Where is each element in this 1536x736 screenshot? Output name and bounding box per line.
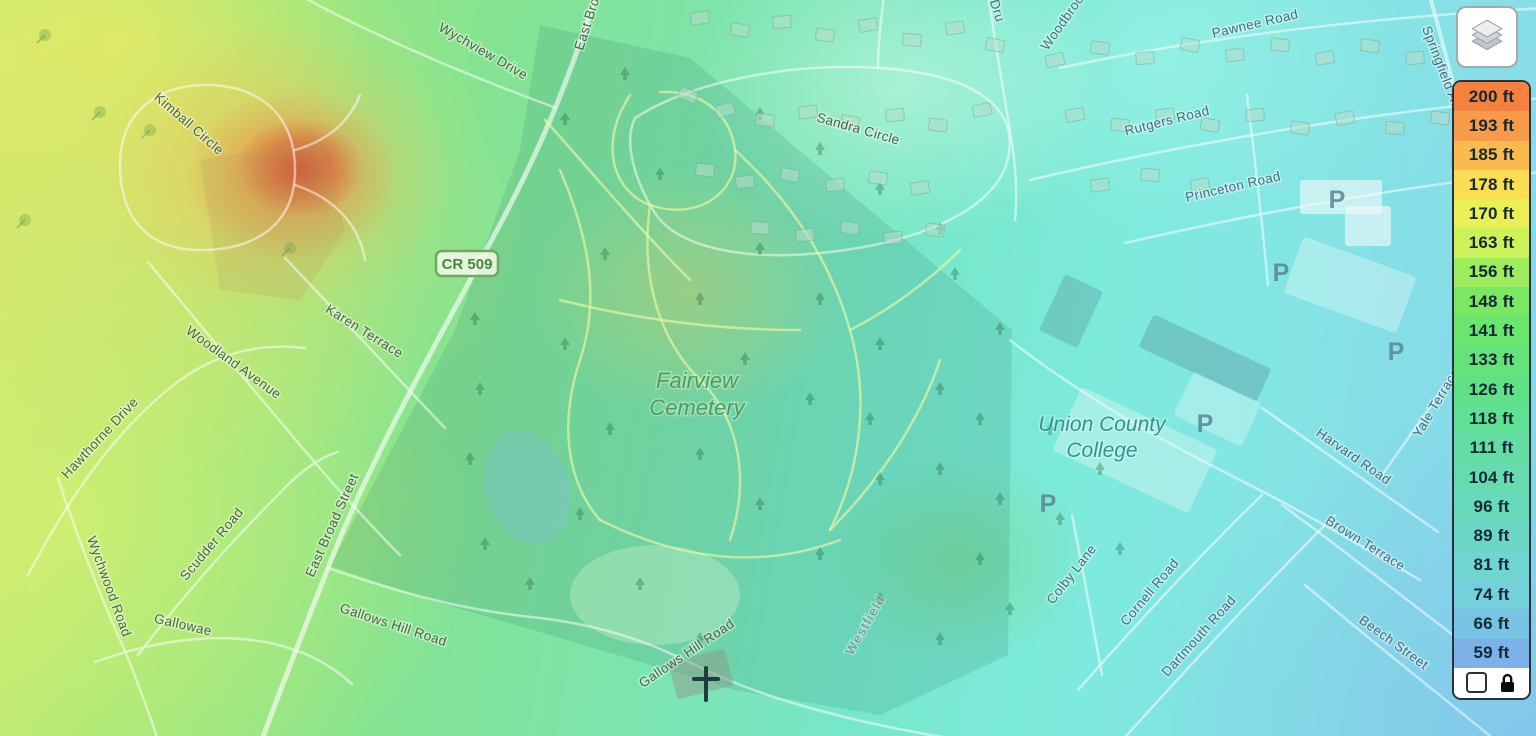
legend-elevation-row: 170 ft bbox=[1454, 199, 1529, 228]
legend-elevation-row: 163 ft bbox=[1454, 228, 1529, 257]
legend-elevation-row: 118 ft bbox=[1454, 404, 1529, 433]
legend-elevation-row: 126 ft bbox=[1454, 375, 1529, 404]
legend-elevation-row: 66 ft bbox=[1454, 609, 1529, 638]
map-label: P bbox=[1197, 410, 1214, 438]
map-label: P bbox=[1040, 490, 1057, 518]
map-label: Woodland Avenue bbox=[183, 323, 284, 402]
elevation-scale: 200 ft193 ft185 ft178 ft170 ft163 ft156 … bbox=[1454, 82, 1529, 668]
legend-elevation-row: 104 ft bbox=[1454, 463, 1529, 492]
legend-elevation-row: 59 ft bbox=[1454, 639, 1529, 668]
map-label: Brown Terrace bbox=[1323, 513, 1408, 574]
legend-controls bbox=[1454, 668, 1529, 698]
legend-elevation-row: 96 ft bbox=[1454, 492, 1529, 521]
map-label: Gallowae bbox=[153, 611, 214, 639]
map-label: Harvard Road bbox=[1313, 425, 1393, 488]
legend-elevation-row: 148 ft bbox=[1454, 287, 1529, 316]
map-label: Kimball Circle bbox=[151, 89, 226, 157]
map-label: Princeton Road bbox=[1184, 168, 1282, 204]
map-label: CR 509 bbox=[442, 256, 493, 273]
topographic-map-app: { "legend": { "unit": "ft", "items": [ {… bbox=[0, 0, 1536, 736]
map-label: Karen Terrace bbox=[323, 301, 406, 361]
map-label: Cemetery bbox=[649, 395, 746, 420]
map-label: Dartmouth Road bbox=[1159, 593, 1239, 680]
map-label: Scudder Road bbox=[177, 505, 246, 584]
map-label: P bbox=[1329, 186, 1346, 214]
map-canvas[interactable]: CR 509 Wychview DriveEast Broad StreetEa… bbox=[0, 0, 1536, 736]
legend-elevation-row: 111 ft bbox=[1454, 434, 1529, 463]
map-label: Wychview Drive bbox=[436, 20, 530, 83]
map-label: Woodbrook bbox=[1038, 0, 1091, 53]
legend-elevation-row: 185 ft bbox=[1454, 141, 1529, 170]
legend-elevation-row: 200 ft bbox=[1454, 82, 1529, 111]
legend-elevation-row: 156 ft bbox=[1454, 258, 1529, 287]
legend-elevation-row: 141 ft bbox=[1454, 316, 1529, 345]
layers-button[interactable] bbox=[1456, 6, 1518, 68]
map-label: College bbox=[1066, 439, 1137, 462]
legend-elevation-row: 133 ft bbox=[1454, 346, 1529, 375]
map-label: Fairview bbox=[656, 368, 740, 393]
map-label: P bbox=[1273, 259, 1290, 287]
map-label: Wychwood Road bbox=[84, 534, 134, 639]
legend-elevation-row: 81 ft bbox=[1454, 551, 1529, 580]
elevation-legend: 200 ft193 ft185 ft178 ft170 ft163 ft156 … bbox=[1452, 80, 1531, 700]
map-label: Colby Lane bbox=[1044, 542, 1100, 607]
legend-elevation-row: 89 ft bbox=[1454, 521, 1529, 550]
map-label: Dru bbox=[987, 0, 1008, 24]
building-area bbox=[200, 140, 345, 300]
map-label: P bbox=[1388, 338, 1405, 366]
map-label: Gallows Hill Road bbox=[338, 600, 449, 649]
map-label: Cornell Road bbox=[1117, 556, 1181, 629]
map-label: Union County bbox=[1038, 413, 1167, 436]
legend-elevation-row: 74 ft bbox=[1454, 580, 1529, 609]
map-label: Beech Street bbox=[1356, 612, 1431, 672]
route-shield: CR 509 bbox=[436, 251, 498, 276]
legend-elevation-row: 193 ft bbox=[1454, 111, 1529, 140]
map-label: Hawthorne Drive bbox=[58, 394, 141, 481]
legend-visibility-checkbox[interactable] bbox=[1466, 672, 1487, 693]
lock-icon[interactable] bbox=[1498, 673, 1517, 693]
legend-elevation-row: 178 ft bbox=[1454, 170, 1529, 199]
layers-icon bbox=[1466, 16, 1508, 58]
